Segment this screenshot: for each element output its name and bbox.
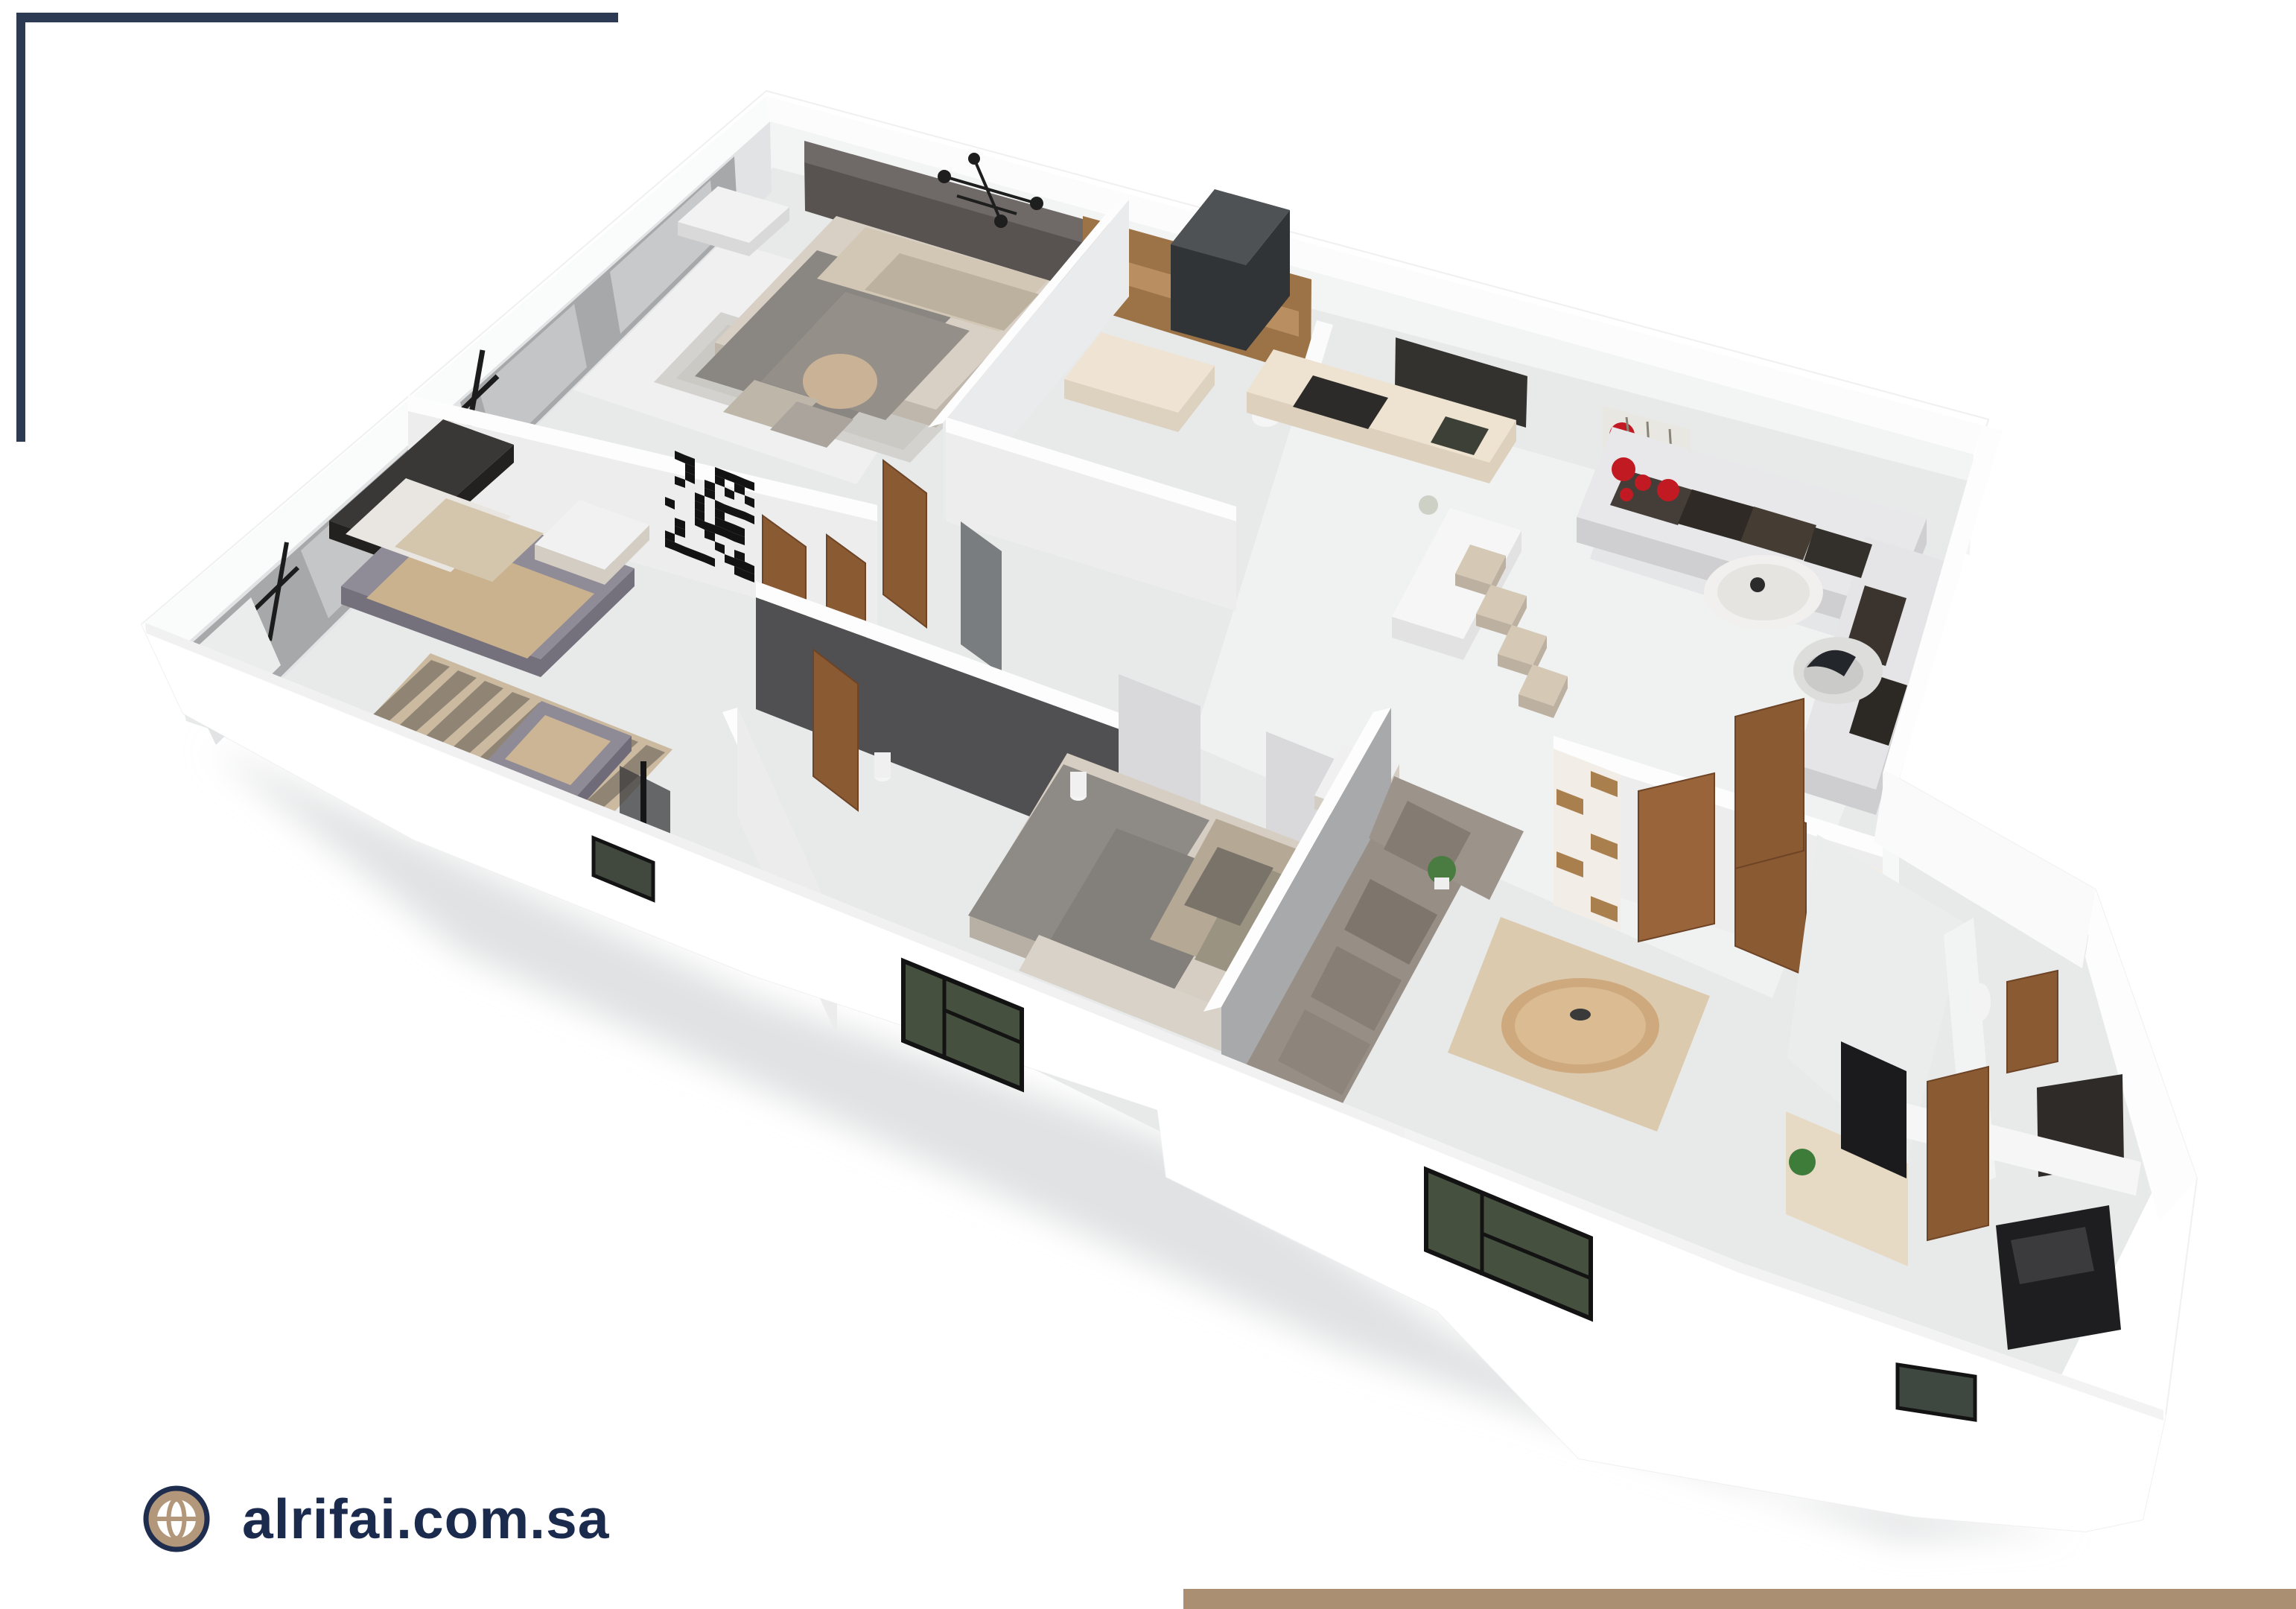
svg-text:alrifai.com.sa: alrifai.com.sa xyxy=(242,1488,610,1550)
